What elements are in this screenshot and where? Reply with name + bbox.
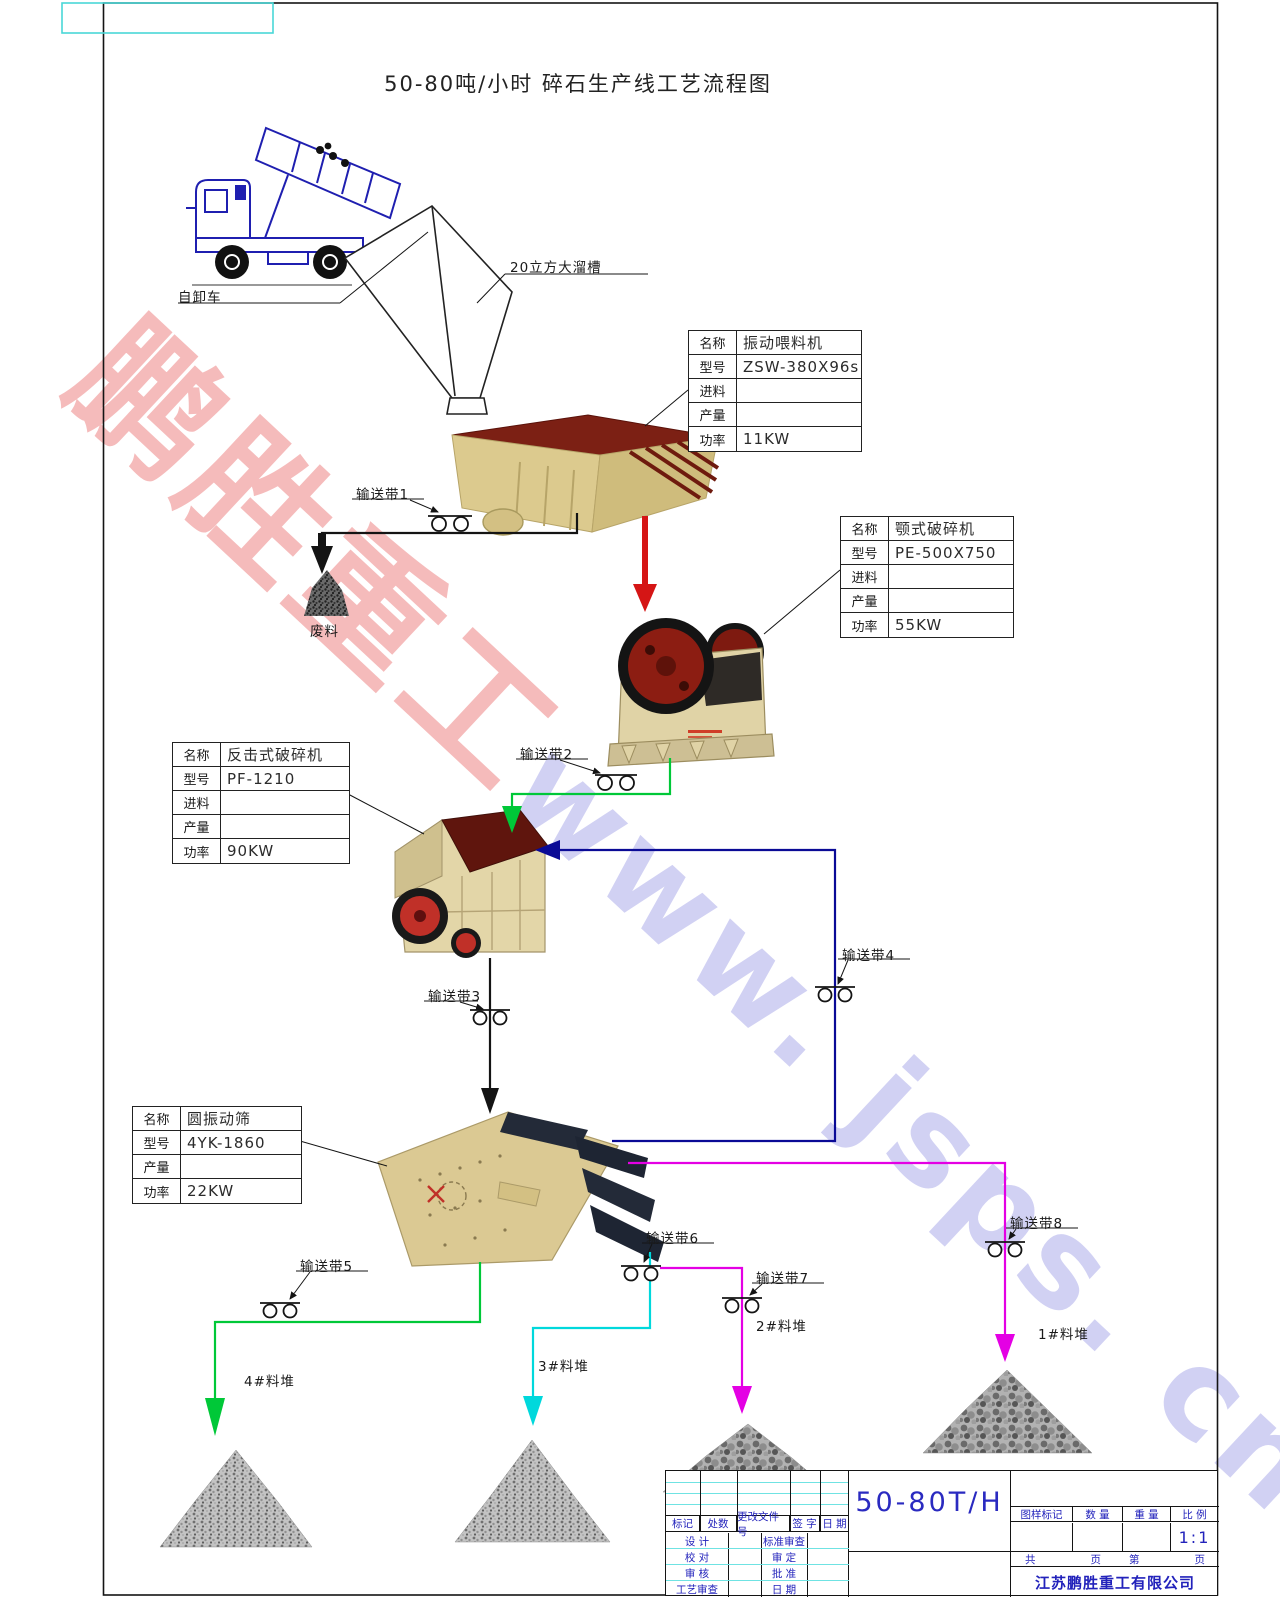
- frame-corner-box: [62, 3, 273, 33]
- conveyor-6-arrow: [523, 1396, 543, 1426]
- truck-rocks: [316, 143, 349, 167]
- hopper-label: 20立方大溜槽: [510, 256, 602, 276]
- pile-4: [160, 1450, 312, 1547]
- conveyor-6-label: 输送带6: [646, 1227, 699, 1247]
- conveyor-symbol-6: [621, 1266, 661, 1281]
- page-title: 50-80吨/小时 碎石生产线工艺流程图: [348, 68, 808, 98]
- signature-rows: 设 计标准审查 校 对审 定 审 核批 准 工艺审查日 期: [666, 1533, 849, 1597]
- company-name: 江苏鹏胜重工有限公司: [1011, 1567, 1219, 1597]
- conveyor-symbol-5: [260, 1303, 300, 1318]
- pile-4-label: 4#料堆: [244, 1370, 295, 1390]
- pile-1: [923, 1370, 1092, 1453]
- feed-arrow: [633, 584, 657, 612]
- conveyor-4-label: 输送带4: [842, 944, 895, 964]
- conveyor-7-arrow: [732, 1386, 752, 1414]
- spec-table-jaw: 名称颚式破碎机 型号PE-500X750 进料 产量 功率55KW: [840, 516, 1014, 638]
- conveyor-1-arrow: [311, 546, 333, 574]
- conveyor-2-label: 输送带2: [520, 743, 573, 763]
- conveyor-3-arrow: [481, 1088, 499, 1114]
- title-block-info-area: 图样标记 数 量 重 量 比 例 1:1 共页 第页 江苏鹏胜重工有限公司: [1011, 1471, 1219, 1597]
- pile-3: [455, 1440, 610, 1542]
- title-block: 标记 处数 更改文件号 签 字 日 期 设 计标准审查 校 对审 定 审 核批 …: [665, 1470, 1218, 1596]
- title-block-revision-area: 标记 处数 更改文件号 签 字 日 期 设 计标准审查 校 对审 定 审 核批 …: [666, 1471, 849, 1597]
- title-block-drawing-title-cell: 50-80T/H: [849, 1471, 1011, 1597]
- info-header-row: 图样标记 数 量 重 量 比 例: [1011, 1506, 1219, 1522]
- pile-1-label: 1#料堆: [1038, 1323, 1089, 1343]
- waste-label: 废料: [310, 620, 339, 640]
- conveyor-1-label: 输送带1: [356, 483, 409, 503]
- conveyor-8-label: 输送带8: [1010, 1212, 1063, 1232]
- waste-pile: [304, 570, 349, 616]
- jaw-crusher: [608, 618, 774, 766]
- conveyor-4-line: [560, 850, 835, 1141]
- spec-table-feeder: 名称振动喂料机 型号ZSW-380X96s 进料 产量 功率11KW: [688, 330, 862, 452]
- truck-wheel: [313, 245, 347, 279]
- conveyor-3-label: 输送带3: [428, 985, 481, 1005]
- conveyor-5-label: 输送带5: [300, 1255, 353, 1275]
- conveyor-8-arrow: [995, 1334, 1015, 1362]
- drawing-title: 50-80T/H: [849, 1487, 1010, 1518]
- flowchart-page: 鹏胜重工www. jsps. cn 50-80吨/小时 碎石生产线工艺流程图: [0, 0, 1280, 1600]
- impact-crusher: [392, 810, 548, 958]
- truck-label: 自卸车: [178, 286, 222, 306]
- conveyor-8-line: [628, 1163, 1005, 1336]
- info-value-row: 1:1: [1011, 1523, 1219, 1552]
- conveyor-7-label: 输送带7: [756, 1267, 809, 1287]
- conveyor-2-line: [512, 758, 670, 808]
- conveyor-7-line: [660, 1268, 742, 1388]
- pile-2-label: 2#料堆: [756, 1315, 807, 1335]
- pile-3-label: 3#料堆: [538, 1355, 589, 1375]
- vibrating-feeder: [452, 415, 718, 535]
- conveyor-1-arrow-stem: [318, 533, 326, 547]
- hopper: [345, 206, 512, 414]
- scale-value: 1:1: [1171, 1523, 1218, 1551]
- spec-table-impact: 名称反击式破碎机 型号PF-1210 进料 产量 功率90KW: [172, 742, 350, 864]
- conveyor-symbol-1: [428, 516, 472, 531]
- conveyor-5-arrow: [205, 1398, 225, 1436]
- revision-header-row: 标记 处数 更改文件号 签 字 日 期: [666, 1515, 849, 1532]
- feed-arrow-stem: [642, 516, 648, 586]
- page-count-row: 共页 第页: [1011, 1552, 1219, 1567]
- spec-table-screen: 名称圆振动筛 型号4YK-1860 产量 功率22KW: [132, 1106, 302, 1204]
- conveyor-symbol-2: [595, 775, 637, 790]
- vibrating-screen: [378, 1112, 664, 1266]
- truck-wheel: [215, 245, 249, 279]
